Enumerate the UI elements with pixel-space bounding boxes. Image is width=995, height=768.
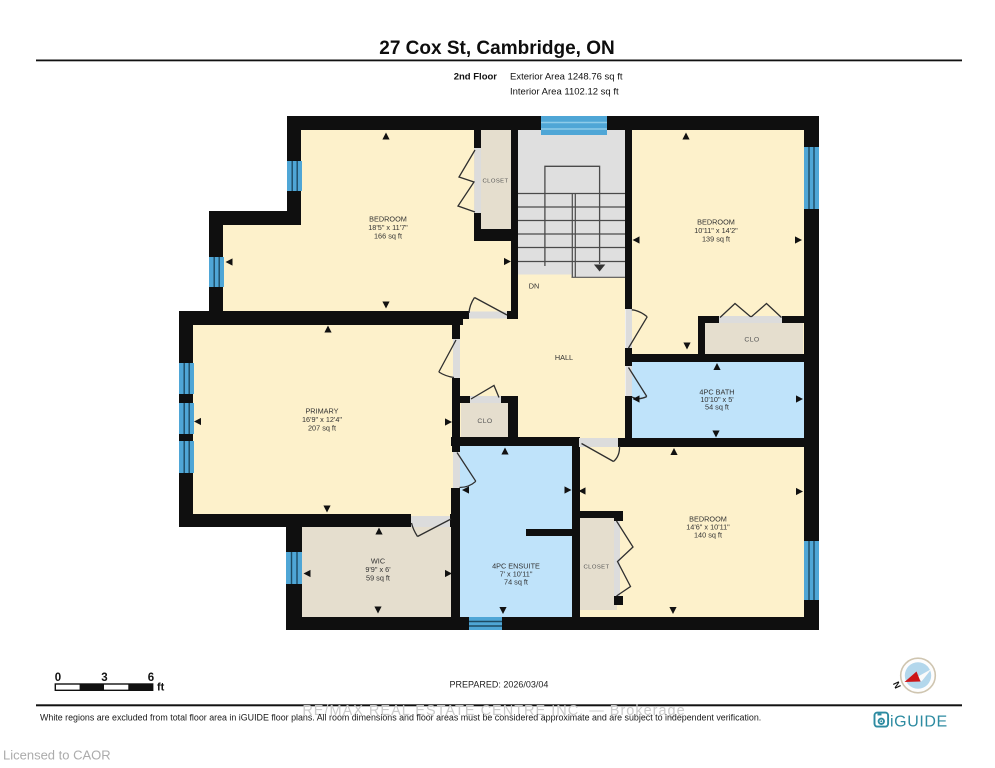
svg-text:54 sq ft: 54 sq ft: [705, 403, 729, 412]
svg-text:DN: DN: [529, 282, 540, 291]
svg-text:3: 3: [101, 672, 107, 684]
svg-text:166 sq ft: 166 sq ft: [374, 232, 402, 241]
svg-text:207 sq ft: 207 sq ft: [308, 424, 336, 433]
svg-text:Licensed to CAOR: Licensed to CAOR: [3, 748, 111, 763]
svg-text:CLOSET: CLOSET: [584, 565, 610, 571]
svg-text:27 Cox St, Cambridge, ON: 27 Cox St, Cambridge, ON: [379, 38, 614, 59]
svg-text:2nd Floor: 2nd Floor: [454, 72, 498, 83]
svg-text:CLOSET: CLOSET: [483, 179, 509, 185]
svg-text:HALL: HALL: [555, 353, 573, 362]
svg-text:6: 6: [148, 672, 154, 684]
svg-text:Interior Area 1102.12 sq ft: Interior Area 1102.12 sq ft: [510, 87, 619, 98]
svg-text:0: 0: [55, 672, 61, 684]
svg-text:59 sq ft: 59 sq ft: [366, 574, 390, 583]
svg-text:ft: ft: [157, 682, 165, 694]
svg-text:PREPARED: 2026/03/04: PREPARED: 2026/03/04: [450, 680, 549, 690]
svg-text:CLO: CLO: [477, 418, 492, 425]
svg-text:74 sq ft: 74 sq ft: [504, 578, 528, 587]
svg-text:iGUIDE: iGUIDE: [890, 714, 948, 731]
svg-text:Exterior Area 1248.76 sq ft: Exterior Area 1248.76 sq ft: [510, 72, 623, 83]
svg-text:CLO: CLO: [744, 337, 759, 344]
svg-text:140 sq ft: 140 sq ft: [694, 531, 722, 540]
svg-text:White regions are excluded fro: White regions are excluded from total fl…: [40, 713, 761, 723]
svg-text:139 sq ft: 139 sq ft: [702, 235, 730, 244]
